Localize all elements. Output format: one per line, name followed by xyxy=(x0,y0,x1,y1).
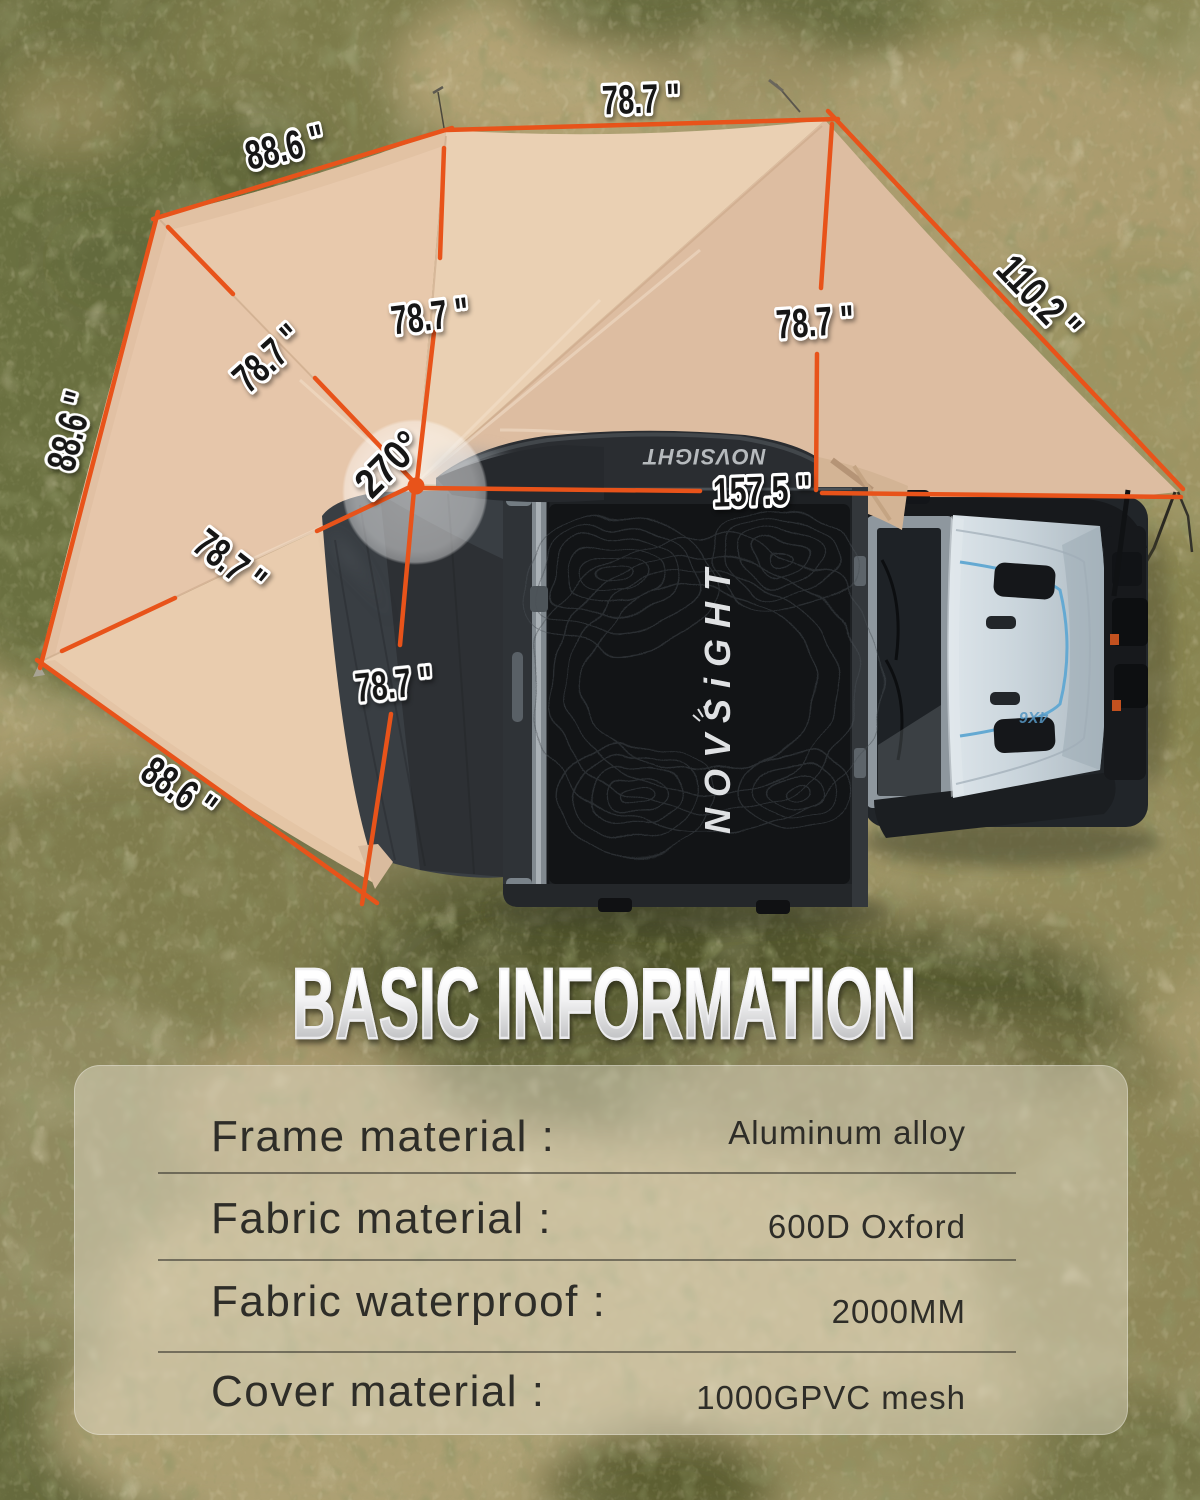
svg-text:157.5 ": 157.5 " xyxy=(712,466,812,515)
svg-text:78.7 ": 78.7 " xyxy=(774,296,855,347)
svg-text:78.7 ": 78.7 " xyxy=(353,657,435,711)
svg-text:NOVSIGHT: NOVSIGHT xyxy=(643,444,766,469)
svg-text:78.7 ": 78.7 " xyxy=(601,75,681,124)
svg-text:78.7 ": 78.7 " xyxy=(388,288,471,343)
svg-text:4X6: 4X6 xyxy=(1019,708,1049,725)
svg-text:NOVSiGHT: NOVSiGHT xyxy=(697,558,738,834)
